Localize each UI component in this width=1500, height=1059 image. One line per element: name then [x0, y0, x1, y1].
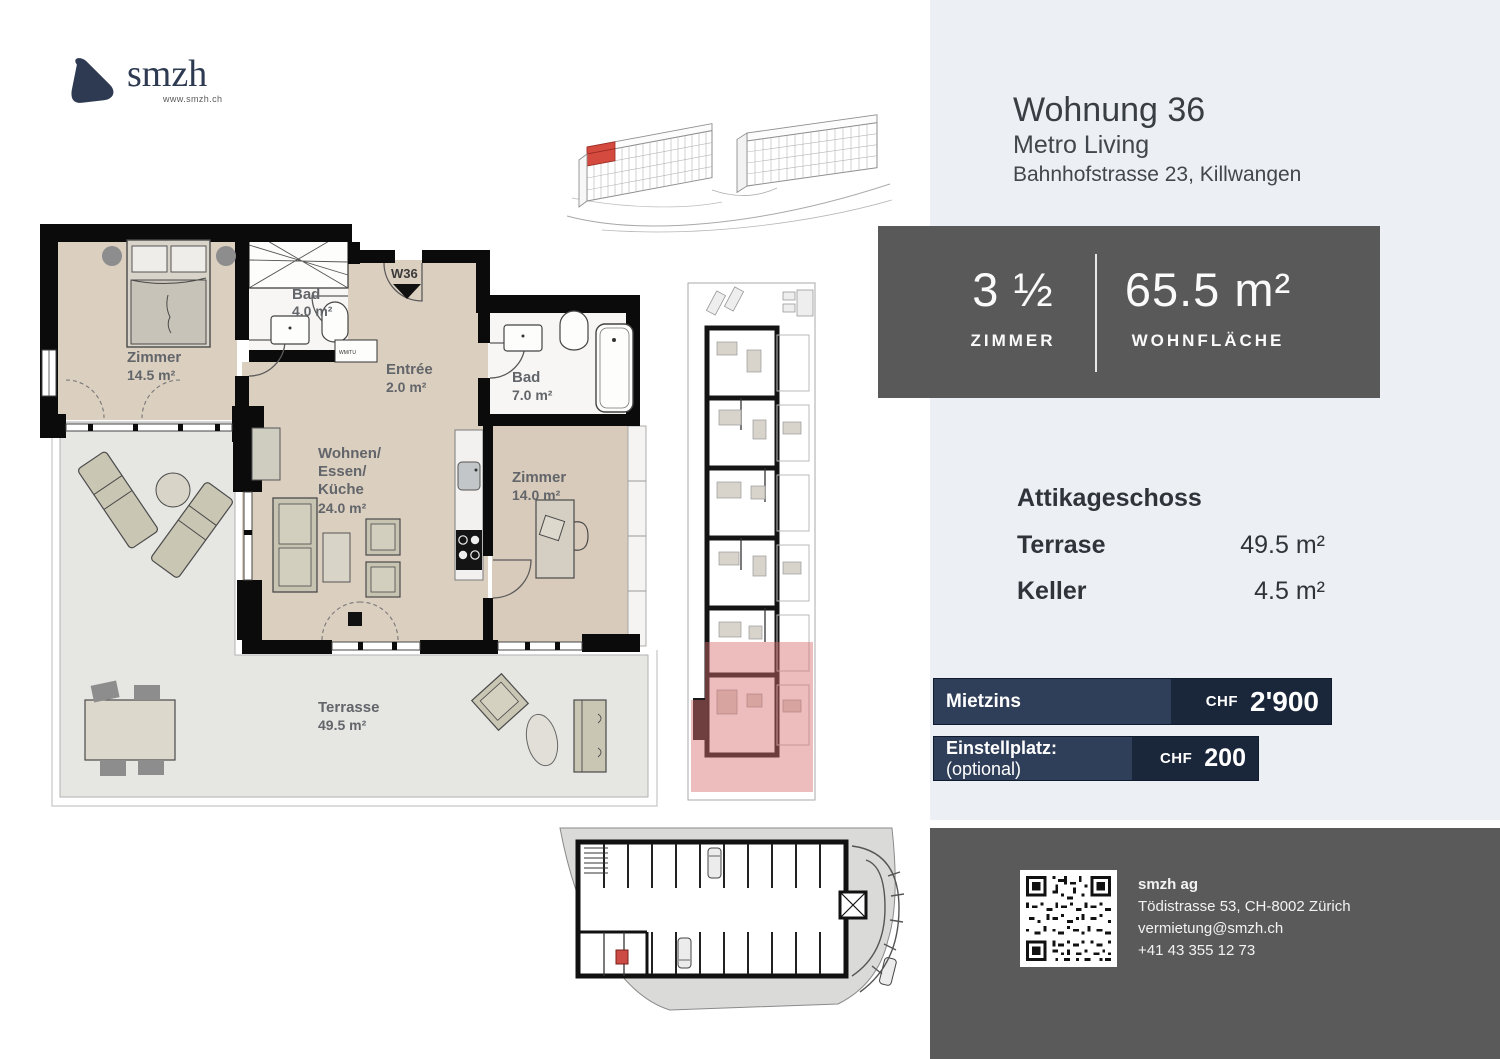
qr-code-image	[1020, 870, 1117, 967]
stats-divider	[1095, 254, 1097, 372]
utility-label: WM/TU	[339, 350, 356, 356]
rent-value: 2'900	[1250, 686, 1331, 718]
garage-plan	[552, 812, 908, 1020]
project-name: Metro Living	[1013, 130, 1301, 161]
bedroom1-label: Zimmer	[127, 349, 181, 366]
qr-code	[1020, 870, 1117, 967]
contact-footer: smzh ag Tödistrasse 53, CH-8002 Zürich v…	[930, 828, 1500, 1059]
rooms-label: ZIMMER	[933, 331, 1093, 351]
contact-block: smzh ag Tödistrasse 53, CH-8002 Zürich v…	[1138, 874, 1351, 962]
terrace-value: 49.5 m²	[1240, 531, 1325, 560]
bath1-label: Bad	[292, 286, 320, 303]
unit-marker-label: W36	[391, 266, 418, 281]
site-illustration	[562, 86, 892, 238]
bath2-area: 7.0 m²	[512, 387, 553, 403]
bath1-area: 4.0 m²	[292, 303, 333, 319]
project-address: Bahnhofstrasse 23, Killwangen	[1013, 161, 1301, 188]
parking-value: 200	[1204, 744, 1258, 773]
detail-row-cellar: Keller 4.5 m²	[1017, 577, 1325, 606]
brand-logo-icon	[63, 56, 115, 108]
bedroom2-label: Zimmer	[512, 469, 566, 486]
rent-label: Mietzins	[934, 691, 1021, 713]
area-label: WOHNFLÄCHE	[1103, 331, 1313, 351]
floor-label: Attikageschoss	[1017, 484, 1325, 513]
title-block: Wohnung 36 Metro Living Bahnhofstrasse 2…	[1013, 90, 1301, 188]
area-value: 65.5 m²	[1103, 262, 1313, 317]
detail-row-terrace: Terrase 49.5 m²	[1017, 531, 1325, 560]
bedroom1-area: 14.5 m²	[127, 367, 176, 383]
terrace-area-plan: 49.5 m²	[318, 717, 367, 733]
terrace-label-plan: Terrasse	[318, 699, 379, 716]
parking-label: Einstellplatz:(optional)	[934, 738, 1132, 780]
floorplan-main: WM/TU	[30, 200, 670, 815]
contact-email: vermietung@smzh.ch	[1138, 918, 1351, 940]
cellar-value: 4.5 m²	[1254, 577, 1325, 606]
parking-bar-left: Einstellplatz:(optional)	[934, 737, 1132, 780]
brand-name: smzh	[127, 52, 207, 96]
rooms-value: 3 ½	[933, 262, 1093, 317]
brand-url: www.smzh.ch	[163, 94, 222, 104]
building-left	[587, 124, 712, 201]
area-stat: 65.5 m² WOHNFLÄCHE	[1103, 262, 1313, 351]
cellar-highlight	[616, 950, 628, 964]
living-label-1: Wohnen/	[318, 445, 382, 462]
contact-company: smzh ag	[1138, 874, 1351, 896]
parking-label-optional: (optional)	[946, 759, 1021, 779]
rent-currency: CHF	[1206, 693, 1238, 710]
entree-label: Entrée	[386, 361, 433, 378]
bedroom2-area: 14.0 m²	[512, 487, 561, 503]
parking-bar-right: CHF 200	[1132, 737, 1258, 780]
floor-details: Attikageschoss Terrase 49.5 m² Keller 4.…	[1017, 484, 1325, 623]
bath2-label: Bad	[512, 369, 540, 386]
floor-overview-plan	[685, 280, 818, 803]
kitchen-stove	[456, 530, 482, 570]
rent-bar-right: CHF 2'900	[1171, 679, 1331, 724]
living-area: 24.0 m²	[318, 500, 367, 516]
contact-phone: +41 43 355 12 73	[1138, 940, 1351, 962]
rent-bar: Mietzins CHF 2'900	[933, 678, 1332, 725]
stats-box: 3 ½ ZIMMER 65.5 m² WOHNFLÄCHE	[878, 226, 1380, 398]
building-right	[737, 115, 877, 193]
rent-bar-left: Mietzins	[934, 679, 1171, 724]
page-title: Wohnung 36	[1013, 90, 1301, 130]
flyer-page: Wohnung 36 Metro Living Bahnhofstrasse 2…	[0, 0, 1500, 1059]
parking-currency: CHF	[1160, 750, 1192, 767]
brand-logo: smzh www.smzh.ch	[63, 50, 283, 110]
sideboard	[252, 428, 280, 480]
parking-label-bold: Einstellplatz:	[946, 738, 1057, 758]
rooms-stat: 3 ½ ZIMMER	[933, 262, 1093, 351]
living-label-2: Essen/	[318, 463, 367, 480]
living-label-3: Küche	[318, 481, 364, 498]
kitchen-sink	[458, 462, 480, 490]
entree-area: 2.0 m²	[386, 379, 427, 395]
contact-address: Tödistrasse 53, CH-8002 Zürich	[1138, 896, 1351, 918]
terrace-label: Terrase	[1017, 531, 1106, 560]
cellar-label: Keller	[1017, 577, 1086, 606]
unit-highlight-overlay	[705, 642, 813, 792]
parking-bar: Einstellplatz:(optional) CHF 200	[933, 736, 1259, 781]
